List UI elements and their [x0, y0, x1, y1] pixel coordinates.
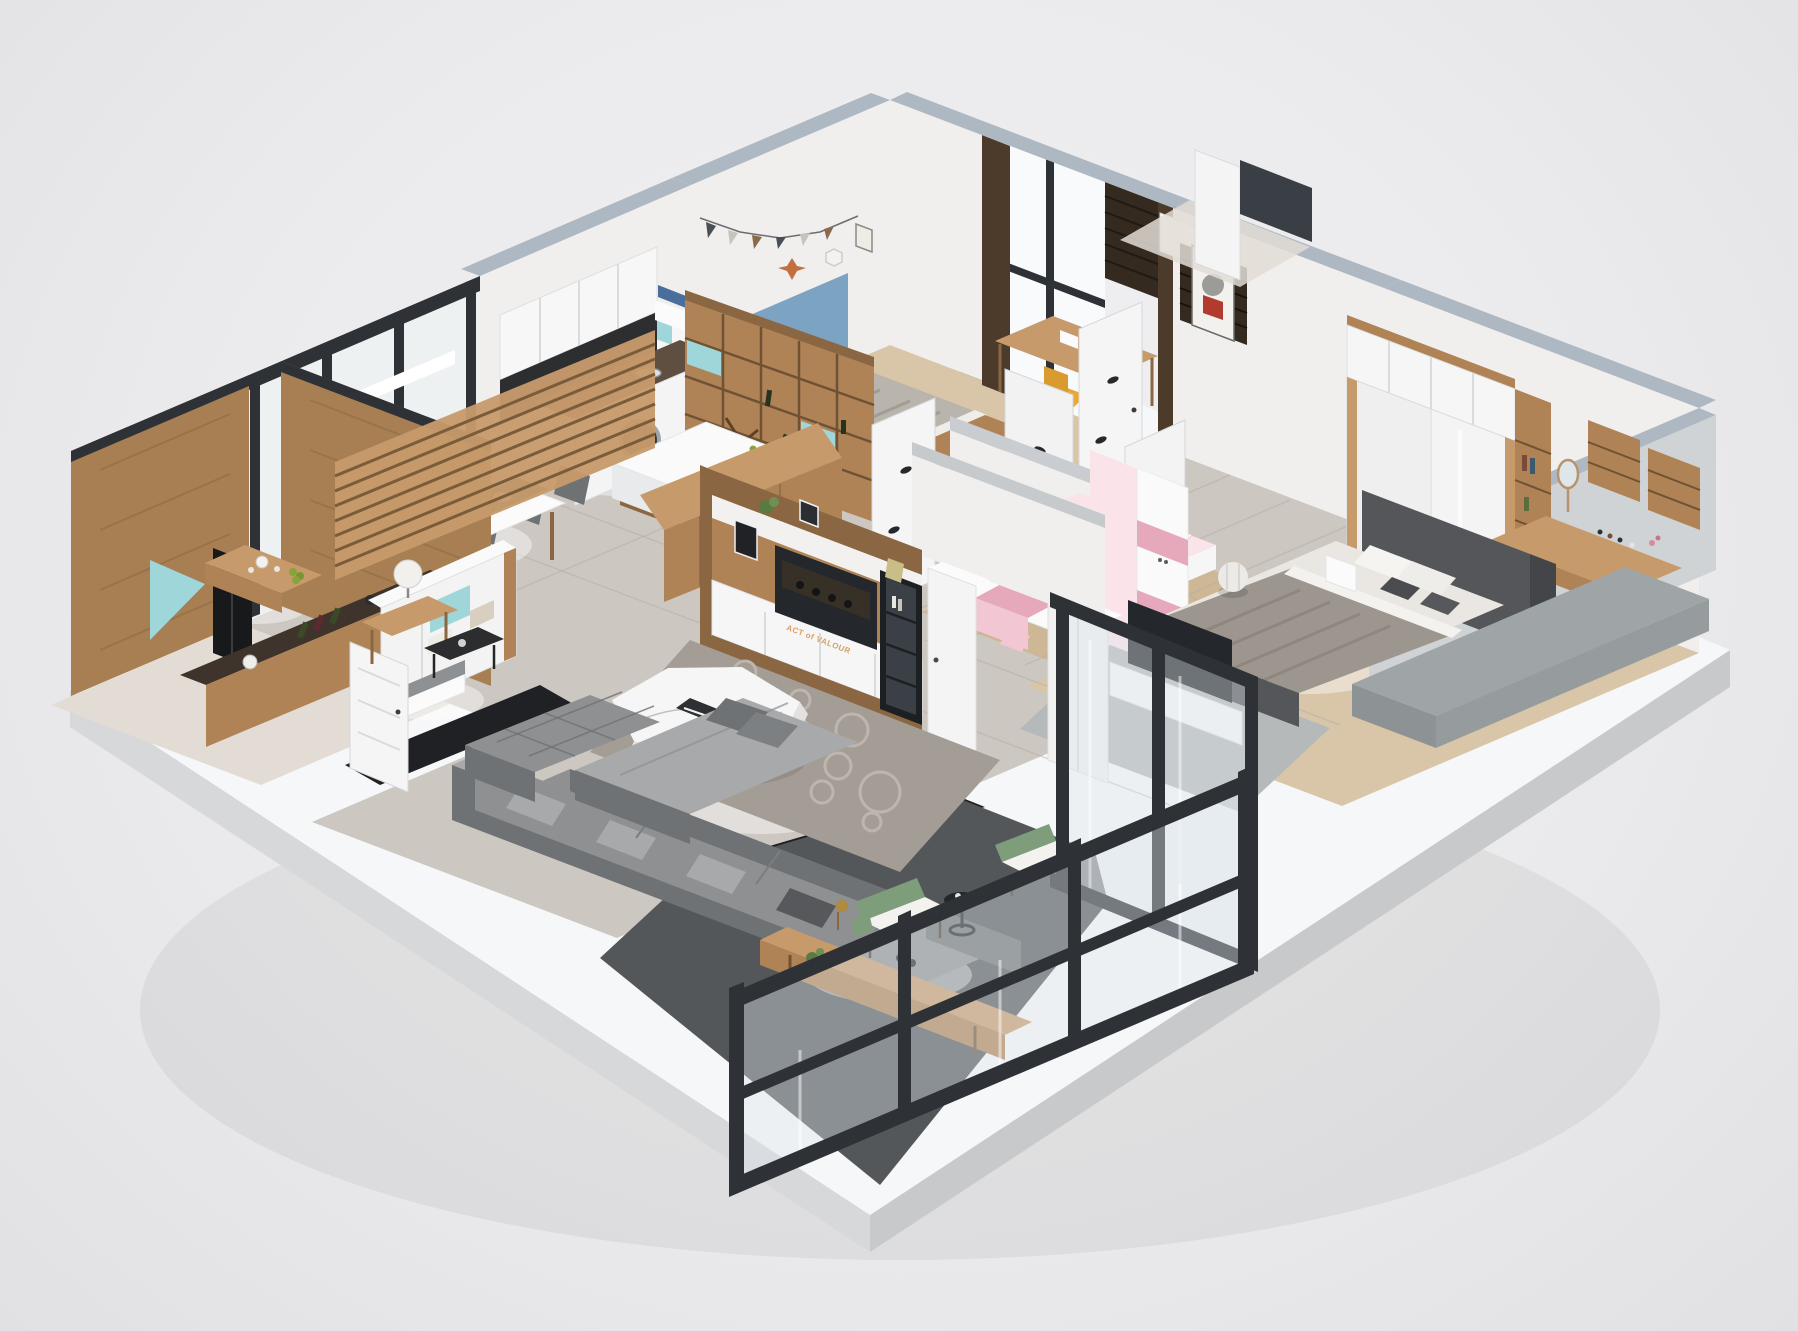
- fruit: [289, 568, 297, 576]
- frame-post: [898, 910, 911, 1124]
- globe-lamp: [394, 560, 422, 588]
- brass-lamp: [836, 900, 848, 912]
- side-panel: [700, 465, 712, 660]
- flowers: [1649, 540, 1655, 546]
- wall-white-section: [890, 100, 995, 385]
- door-handle: [396, 710, 401, 715]
- kettle: [243, 655, 257, 669]
- wood-side-band: [504, 548, 516, 661]
- front-door: [350, 642, 408, 792]
- frame-post: [1068, 838, 1081, 1052]
- scene-canvas: ACT of VALOUR: [0, 0, 1798, 1331]
- white-door: [1195, 150, 1240, 280]
- display-cabinet: [880, 570, 922, 725]
- wine-bottle: [841, 420, 846, 434]
- cup: [458, 639, 466, 647]
- frame-post: [729, 982, 744, 1196]
- frame-post: [1238, 766, 1251, 980]
- vanity-mirror: [1558, 460, 1578, 488]
- teapot: [256, 556, 268, 568]
- isometric-apartment-render: ACT of VALOUR: [0, 0, 1798, 1331]
- frame-post: [1056, 598, 1069, 885]
- pouf: [1218, 562, 1248, 598]
- door-wood-edge: [1347, 377, 1357, 561]
- hexagon-shelf: [826, 249, 842, 266]
- curtain-left: [982, 135, 1010, 396]
